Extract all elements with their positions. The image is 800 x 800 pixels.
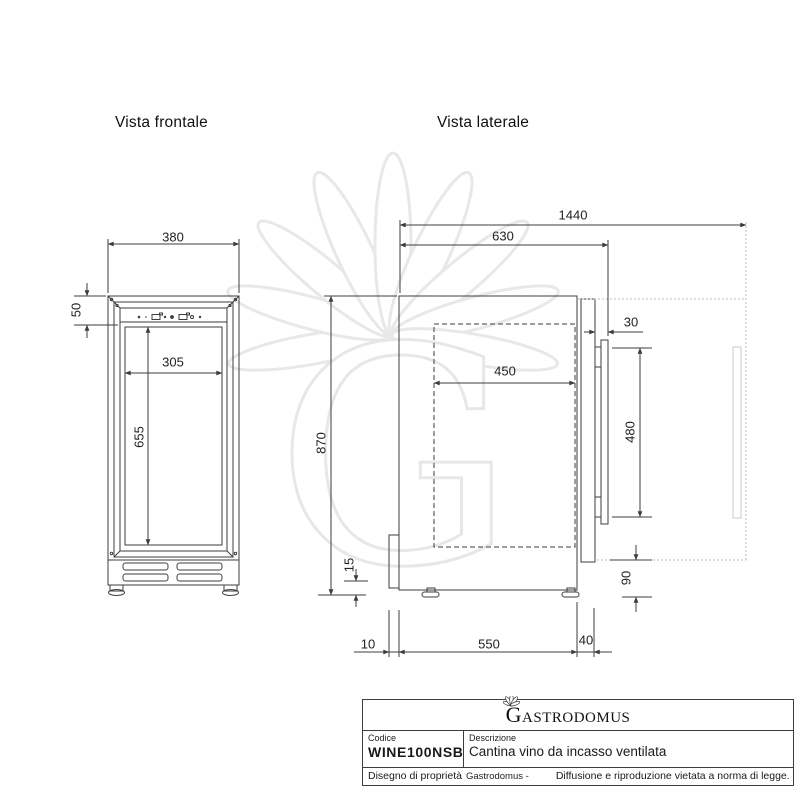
open-door-handle-ghost [733,347,741,518]
dim-label-sv-rear-gap: 10 [361,637,375,652]
dim-side-height [318,296,397,595]
code-cell: Codice WINE100NSB [363,731,464,767]
side-body-outline [399,296,577,590]
side-view-drawing [318,220,746,657]
title-block-data-row: Codice WINE100NSB Descrizione Cantina vi… [363,731,793,768]
title-block-disclaimer-row: Disegno di proprietà Gastrodomus - Diffu… [363,768,793,784]
description-label: Descrizione [469,733,793,743]
title-block-logo-row: Gastrodomus [363,700,793,731]
technical-drawing-page: G [0,0,800,800]
dim-side-total-open-depth [400,220,746,293]
dim-label-sv-body-depth: 550 [478,637,500,652]
dim-label-fv-panel-height: 50 [69,303,84,317]
side-door [581,299,595,562]
disclaimer-brand: Gastrodomus - [466,771,529,782]
dim-label-sv-handle-height: 480 [623,421,638,443]
description-cell: Descrizione Cantina vino da incasso vent… [464,731,793,767]
dim-label-sv-total-open-depth: 1440 [559,208,588,223]
open-door-projection [578,222,746,560]
control-panel-icons [138,313,202,320]
chef-hat-icon [503,696,520,709]
front-view-title: Vista frontale [115,114,208,132]
disclaimer-notice: Diffusione e riproduzione vietata a norm… [556,770,790,782]
front-feet [109,585,239,596]
frame-bevels [108,296,239,557]
frame-screws [110,298,236,554]
side-view-title: Vista laterale [437,114,529,132]
rear-spacer [389,535,399,588]
dim-label-fv-inner-width: 305 [162,355,184,370]
description-value: Cantina vino da incasso ventilata [469,744,793,759]
side-feet [422,588,579,597]
dim-front-width [108,239,239,293]
dim-label-sv-handle-depth: 30 [624,315,638,330]
dim-label-sv-door-depth: 40 [579,633,593,648]
code-label: Codice [368,733,463,743]
dim-label-sv-depth-with-handle: 630 [492,229,514,244]
side-handle [595,340,608,524]
front-view-drawing [74,239,239,596]
title-block: Gastrodomus Codice WINE100NSB Descrizion… [362,699,794,786]
dim-label-sv-inner-depth: 450 [494,364,516,379]
dim-label-sv-foot-height: 15 [342,558,357,572]
dim-side-foot-height [344,569,368,607]
dim-label-sv-height: 870 [314,432,329,454]
side-inner-cavity [434,324,575,547]
disclaimer-owner: Disegno di proprietà [368,770,462,782]
dim-label-sv-bottom-clearance: 90 [619,571,634,585]
front-cabinet-outline [108,296,239,585]
brand-logo-text: Gastrodomus [506,702,631,727]
vent-grille [123,563,222,581]
dim-label-fv-width: 380 [162,230,184,245]
code-value: WINE100NSB [368,744,463,760]
dim-label-fv-inner-height: 655 [132,426,147,448]
